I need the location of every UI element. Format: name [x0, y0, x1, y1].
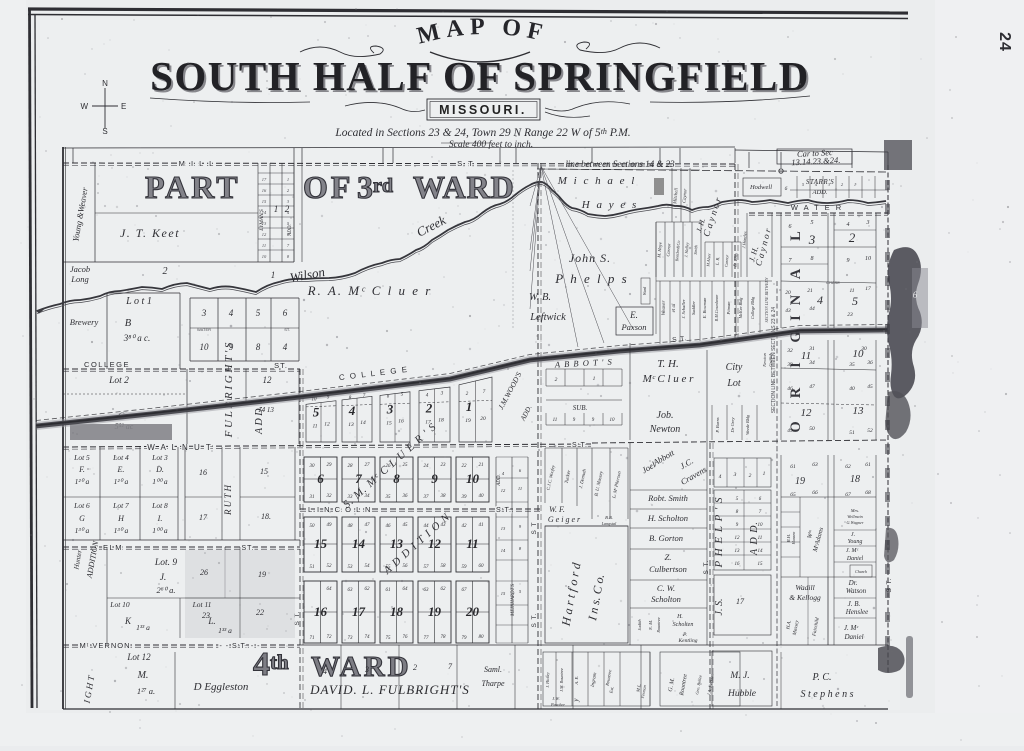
- svg-text:Paxson: Paxson: [620, 322, 646, 332]
- svg-text:28: 28: [348, 464, 354, 469]
- svg-text:14: 14: [352, 536, 366, 551]
- svg-text:13: 13: [735, 549, 741, 554]
- svg-text:Robt. Smith: Robt. Smith: [647, 493, 688, 503]
- svg-text:L.: L.: [207, 616, 215, 626]
- svg-text:L. R.: L. R.: [715, 256, 721, 266]
- svg-text:52: 52: [867, 428, 873, 434]
- svg-text:48: 48: [348, 524, 354, 529]
- svg-text:S T.: S T.: [531, 612, 538, 627]
- svg-text:64: 64: [327, 587, 333, 592]
- svg-text:20: 20: [465, 604, 480, 619]
- svg-text:1⁰⁰ a: 1⁰⁰ a: [152, 477, 168, 486]
- svg-text:& Kellogg: & Kellogg: [789, 593, 821, 602]
- svg-text:50: 50: [310, 524, 316, 529]
- svg-text:John S.: John S.: [569, 251, 611, 265]
- svg-text:45: 45: [867, 383, 873, 390]
- svg-text:H. Scholton: H. Scholton: [647, 513, 688, 523]
- svg-text:Long: Long: [70, 274, 88, 284]
- svg-text:33: 33: [786, 362, 793, 368]
- svg-text:6: 6: [913, 290, 918, 300]
- svg-text:1³³ a: 1³³ a: [136, 623, 150, 632]
- svg-text:49: 49: [327, 523, 333, 528]
- svg-text:17: 17: [736, 597, 745, 606]
- svg-text:N: N: [788, 294, 804, 305]
- svg-text:W. B.: W. B.: [529, 292, 551, 303]
- svg-text:47: 47: [365, 523, 371, 528]
- svg-text:53: 53: [348, 565, 354, 570]
- svg-text:J.: J.: [160, 573, 167, 583]
- svg-text:Kentling: Kentling: [678, 638, 698, 644]
- svg-text:4: 4: [283, 342, 288, 352]
- svg-text:3: 3: [866, 220, 870, 226]
- svg-text:3: 3: [201, 308, 207, 318]
- svg-text:Mᵗ VERNON: Mᵗ VERNON: [79, 641, 130, 650]
- svg-text:1³⁰ a: 1³⁰ a: [114, 526, 129, 535]
- svg-text:4: 4: [348, 403, 356, 418]
- svg-text:ST.: ST.: [284, 327, 290, 332]
- svg-text:40: 40: [479, 494, 485, 499]
- svg-text:G: G: [79, 514, 85, 523]
- svg-text:17: 17: [262, 177, 267, 182]
- svg-text:Lot 12: Lot 12: [126, 652, 151, 662]
- svg-text:A: A: [788, 268, 804, 279]
- svg-text:11: 11: [262, 243, 266, 248]
- svg-text:et al: et al: [672, 303, 677, 312]
- svg-text:39: 39: [462, 495, 468, 500]
- svg-text:Lot. 9: Lot. 9: [154, 558, 177, 568]
- svg-text:Lot 10: Lot 10: [109, 600, 130, 609]
- svg-text:16: 16: [199, 468, 207, 477]
- svg-text:79: 79: [462, 636, 468, 641]
- svg-text:Henslee: Henslee: [845, 608, 869, 616]
- svg-text:13: 13: [348, 422, 354, 428]
- svg-text:Hubble: Hubble: [727, 689, 756, 699]
- svg-text:Rountree: Rountree: [656, 617, 661, 633]
- svg-text:F.: F.: [78, 465, 85, 474]
- svg-text:18.: 18.: [261, 512, 271, 521]
- svg-text:Job.: Job.: [657, 410, 674, 421]
- svg-text:Scale 400 feet to inch.: Scale 400 feet to inch.: [449, 139, 533, 150]
- svg-text:58: 58: [441, 564, 447, 569]
- svg-text:L I N C O L N: L I N C O L N: [308, 505, 372, 514]
- svg-text:10: 10: [865, 256, 871, 262]
- svg-text:63: 63: [812, 462, 818, 468]
- svg-text:10: 10: [262, 254, 267, 259]
- svg-text:L o t 1: L o t 1: [125, 296, 152, 307]
- svg-text:36: 36: [403, 494, 409, 499]
- svg-text:19: 19: [465, 418, 471, 424]
- svg-text:50: 50: [809, 426, 815, 432]
- svg-text:46: 46: [386, 524, 392, 529]
- svg-text:1³³ a: 1³³ a: [218, 626, 232, 635]
- svg-text:61: 61: [386, 588, 391, 593]
- svg-text:17: 17: [425, 419, 431, 425]
- svg-text:E: E: [121, 102, 126, 111]
- svg-text:3: 3: [386, 402, 394, 417]
- svg-text:G e i g e r: G e i g e r: [548, 515, 581, 524]
- svg-text:WARD: WARD: [413, 169, 515, 205]
- svg-text:66: 66: [812, 490, 818, 496]
- svg-text:Saml.: Saml.: [484, 665, 502, 674]
- svg-text:Weede Bldg: Weede Bldg: [745, 415, 750, 435]
- svg-text:Smith: Smith: [693, 245, 699, 255]
- svg-text:42: 42: [462, 524, 468, 529]
- svg-text:J. B.: J. B.: [848, 600, 861, 608]
- svg-text:14: 14: [360, 419, 366, 426]
- svg-text:32: 32: [786, 348, 793, 354]
- svg-text:4: 4: [323, 667, 327, 676]
- svg-text:11: 11: [312, 423, 317, 429]
- svg-text:67: 67: [462, 588, 468, 593]
- svg-text:SECTION LINE BETWEEN: SECTION LINE BETWEEN: [764, 277, 769, 322]
- svg-text:14: 14: [501, 548, 506, 553]
- svg-text:9: 9: [431, 471, 438, 486]
- svg-text:Griffith: Griffith: [768, 353, 773, 367]
- svg-text:12: 12: [501, 488, 506, 493]
- svg-text:18: 18: [850, 474, 860, 485]
- svg-text:37: 37: [424, 495, 430, 500]
- svg-text:45: 45: [403, 523, 409, 528]
- svg-text:47: 47: [809, 383, 815, 390]
- svg-text:Lot 2: Lot 2: [108, 376, 129, 386]
- svg-text:T. H.: T. H.: [657, 358, 679, 370]
- svg-text:OF: OF: [303, 169, 353, 205]
- svg-text:1²⁷ a.: 1²⁷ a.: [137, 686, 155, 696]
- svg-text:B.B.: B.B.: [605, 515, 613, 520]
- svg-text:11: 11: [518, 486, 522, 491]
- svg-text:21: 21: [479, 463, 484, 468]
- svg-text:Watson: Watson: [846, 587, 867, 595]
- svg-text:44: 44: [809, 305, 815, 312]
- svg-text:SOUTH HALF OF SPRINGFIELD: SOUTH HALF OF SPRINGFIELD: [150, 53, 810, 99]
- svg-text:24: 24: [996, 32, 1013, 52]
- svg-text:1²⁰ a: 1²⁰ a: [75, 477, 90, 486]
- svg-text:Newton: Newton: [649, 424, 681, 435]
- svg-text:62: 62: [441, 587, 447, 592]
- svg-text:Z.: Z.: [665, 552, 672, 562]
- svg-text:1: 1: [274, 204, 279, 214]
- svg-text:A D D.: A D D.: [254, 406, 265, 435]
- svg-text:22: 22: [256, 608, 264, 617]
- svg-text:1³⁰ a: 1³⁰ a: [75, 526, 90, 535]
- svg-text:12: 12: [263, 375, 273, 385]
- svg-text:Church: Church: [855, 569, 867, 574]
- svg-text:CHASE: CHASE: [826, 280, 840, 285]
- svg-text:Brewery: Brewery: [70, 317, 99, 327]
- svg-text:57: 57: [424, 565, 430, 570]
- svg-text:8: 8: [256, 342, 261, 352]
- svg-text:9: 9: [847, 258, 850, 264]
- svg-text:78: 78: [441, 635, 447, 640]
- svg-text:L: L: [788, 231, 804, 241]
- svg-text:49: 49: [787, 427, 793, 434]
- svg-text:75: 75: [386, 636, 392, 641]
- svg-text:76: 76: [403, 635, 409, 640]
- svg-text:15: 15: [386, 421, 392, 427]
- svg-text:College Bldg: College Bldg: [750, 297, 755, 319]
- svg-text:4: 4: [719, 473, 722, 480]
- svg-text:63: 63: [348, 588, 354, 593]
- svg-text:McKee Bldg: McKee Bldg: [738, 298, 743, 320]
- svg-text:Jacob: Jacob: [70, 264, 90, 274]
- svg-text:S T: S T: [531, 522, 538, 535]
- svg-text:Lot 5: Lot 5: [73, 453, 90, 462]
- svg-text:52: 52: [327, 564, 333, 569]
- svg-text:31: 31: [310, 495, 315, 500]
- svg-text:4: 4: [229, 308, 234, 318]
- svg-text:M I L L: M I L L: [179, 159, 216, 168]
- svg-text:Mᶜ C l u e r: Mᶜ C l u e r: [642, 373, 695, 385]
- svg-text:Young: Young: [848, 539, 863, 545]
- svg-text:61: 61: [790, 464, 796, 470]
- svg-text:Culbertson: Culbertson: [649, 564, 687, 574]
- svg-text:61: 61: [865, 462, 871, 468]
- svg-text:ADD.: ADD.: [497, 474, 502, 487]
- svg-text:H a y e s: H a y e s: [581, 199, 639, 211]
- svg-text:S t e p h e n s: S t e p h e n s: [800, 689, 853, 700]
- svg-text:4: 4: [847, 221, 850, 228]
- svg-text:46: 46: [787, 385, 793, 392]
- svg-text:W: W: [80, 102, 88, 111]
- svg-text:2: 2: [413, 663, 417, 672]
- svg-text:20: 20: [480, 416, 486, 422]
- svg-text:24: 24: [424, 464, 430, 469]
- svg-text:16: 16: [314, 604, 328, 619]
- svg-text:68: 68: [865, 490, 871, 496]
- svg-text:R U T H: R U T H: [223, 484, 233, 516]
- svg-text:30: 30: [310, 464, 316, 469]
- svg-text:E. Bowman: E. Bowman: [702, 297, 707, 319]
- svg-text:3⁸⁰ a c.: 3⁸⁰ a c.: [123, 333, 150, 343]
- svg-text:60: 60: [479, 564, 485, 569]
- svg-text:DAVID. L. FULBRIGHT'S: DAVID. L. FULBRIGHT'S: [309, 682, 470, 697]
- svg-text:1⁰⁰ a: 1⁰⁰ a: [152, 526, 168, 535]
- svg-text:Lot 8: Lot 8: [151, 501, 168, 510]
- svg-text:Hodwell: Hodwell: [749, 184, 772, 191]
- svg-text:Lot 7: Lot 7: [112, 501, 129, 510]
- svg-text:13: 13: [853, 405, 865, 417]
- svg-text:Wadill: Wadill: [795, 583, 814, 592]
- svg-text:23: 23: [847, 312, 853, 318]
- svg-text:4: 4: [817, 293, 823, 307]
- svg-text:5: 5: [256, 308, 261, 318]
- svg-text:1²⁰ a: 1²⁰ a: [114, 477, 129, 486]
- svg-text:line between Sections 14 & 23: line between Sections 14 & 23: [565, 159, 675, 169]
- svg-text:P. Burns: P. Burns: [715, 417, 720, 433]
- svg-text:22: 22: [462, 464, 468, 469]
- svg-text:54: 54: [365, 564, 371, 569]
- svg-text:N: N: [102, 79, 108, 88]
- svg-text:Daniel: Daniel: [843, 633, 863, 641]
- svg-text:Wellmein: Wellmein: [847, 514, 862, 519]
- svg-text:62: 62: [845, 464, 851, 470]
- svg-text:G.Wagner: G.Wagner: [847, 520, 864, 525]
- svg-text:80: 80: [479, 635, 485, 640]
- svg-text:A D D.: A D D.: [749, 521, 760, 556]
- svg-text:11: 11: [801, 350, 811, 362]
- svg-text:15: 15: [758, 562, 764, 567]
- svg-text:Newton: Newton: [762, 352, 767, 368]
- svg-text:H.: H.: [676, 614, 683, 620]
- svg-text:M. J.: M. J.: [729, 671, 749, 681]
- svg-text:15: 15: [314, 536, 328, 551]
- svg-text:ST.: ST.: [274, 361, 288, 370]
- svg-text:72: 72: [327, 635, 333, 640]
- svg-text:N. M.: N. M.: [648, 620, 653, 631]
- svg-text:10: 10: [610, 418, 616, 423]
- svg-text:C. W.: C. W.: [657, 583, 675, 593]
- svg-text:B: B: [125, 318, 132, 329]
- svg-text:51: 51: [849, 430, 855, 436]
- svg-text:Lot 3: Lot 3: [151, 453, 168, 462]
- svg-text:15: 15: [260, 467, 268, 476]
- svg-text:23: 23: [441, 463, 447, 468]
- svg-text:2: 2: [163, 266, 168, 277]
- svg-text:R. A. Mᶜ C l u e r: R. A. Mᶜ C l u e r: [307, 283, 433, 298]
- svg-text:Saddler: Saddler: [691, 301, 696, 315]
- svg-text:59: 59: [462, 565, 468, 570]
- svg-text:Scholton: Scholton: [651, 594, 681, 604]
- svg-text:25: 25: [403, 463, 409, 468]
- svg-text:K: K: [124, 616, 132, 626]
- svg-text:6: 6: [317, 471, 324, 486]
- svg-text:Ward: Ward: [642, 286, 647, 295]
- svg-text:10: 10: [200, 342, 210, 352]
- svg-text:35: 35: [386, 495, 392, 500]
- svg-text:R.M.Cownlenee: R.M.Cownlenee: [714, 294, 719, 322]
- svg-text:71: 71: [310, 636, 315, 641]
- svg-text:3: 3: [808, 232, 816, 247]
- svg-text:19: 19: [795, 476, 805, 487]
- svg-text:City: City: [726, 362, 743, 373]
- svg-text:P H E L P ' S: P H E L P ' S: [713, 497, 725, 569]
- svg-text:63: 63: [424, 588, 430, 593]
- svg-text:5: 5: [852, 294, 858, 308]
- svg-text:S T.: S T.: [703, 559, 710, 574]
- svg-text:51: 51: [310, 565, 315, 570]
- svg-text:WATER: WATER: [197, 327, 211, 332]
- svg-text:15: 15: [262, 199, 267, 204]
- svg-text:J. T. Keet: J. T. Keet: [120, 226, 180, 240]
- svg-text:B. Gorton: B. Gorton: [649, 533, 683, 543]
- svg-text:6: 6: [785, 186, 788, 192]
- svg-text:43: 43: [785, 307, 791, 314]
- svg-text:17: 17: [352, 604, 366, 619]
- svg-text:12: 12: [801, 407, 813, 419]
- svg-text:10: 10: [312, 397, 318, 402]
- svg-text:Lot 4: Lot 4: [112, 453, 129, 462]
- svg-text:2: 2: [555, 377, 558, 383]
- svg-text:F U L B R I G H T ' S: F U L B R I G H T ' S: [223, 342, 235, 438]
- svg-text:1: 1: [593, 376, 596, 382]
- svg-text:5: 5: [313, 404, 320, 419]
- svg-text:62: 62: [365, 587, 371, 592]
- svg-text:67: 67: [845, 492, 851, 498]
- svg-text:W A T E R: W A T E R: [791, 203, 843, 212]
- svg-text:6: 6: [789, 224, 792, 230]
- svg-text:35: 35: [848, 362, 855, 368]
- svg-text:Leftwick: Leftwick: [529, 312, 566, 323]
- svg-text:65: 65: [790, 492, 796, 498]
- svg-text:Weaver: Weaver: [662, 301, 667, 316]
- svg-text:5: 5: [811, 220, 814, 226]
- svg-text:32: 32: [327, 494, 333, 499]
- svg-text:1: 1: [466, 399, 473, 414]
- svg-text:26: 26: [200, 568, 208, 577]
- svg-text:74: 74: [365, 635, 371, 640]
- svg-text:W. F.: W. F.: [549, 505, 565, 514]
- svg-text:56: 56: [403, 564, 409, 569]
- svg-text:Dr Grey: Dr Grey: [730, 418, 735, 434]
- svg-text:29: 29: [327, 463, 333, 468]
- svg-text:36: 36: [866, 360, 873, 366]
- svg-text:G: G: [788, 331, 804, 342]
- svg-text:J.W.: J.W.: [552, 696, 560, 701]
- svg-text:W A L N U T: W A L N U T: [147, 443, 213, 452]
- svg-text:19: 19: [428, 604, 442, 619]
- svg-text:Dr.: Dr.: [848, 579, 858, 587]
- svg-text:J. Mᶜ: J. Mᶜ: [846, 548, 859, 554]
- svg-text:Mrs.: Mrs.: [850, 508, 859, 513]
- svg-text:41: 41: [479, 523, 484, 528]
- svg-text:Daniel: Daniel: [846, 556, 864, 562]
- svg-text:J.M. Rountree: J.M. Rountree: [559, 668, 564, 692]
- svg-text:15: 15: [501, 591, 506, 596]
- svg-text:73: 73: [348, 636, 354, 641]
- svg-text:E.: E.: [629, 310, 638, 320]
- svg-text:19: 19: [258, 570, 266, 579]
- svg-text:8: 8: [811, 256, 814, 262]
- svg-text:Peacher: Peacher: [550, 702, 565, 707]
- svg-text:MEINHARDT'S: MEINHARDT'S: [511, 584, 516, 617]
- svg-text:2⁶⁰ a.: 2⁶⁰ a.: [156, 585, 175, 595]
- svg-text:16: 16: [735, 562, 741, 567]
- svg-text:10: 10: [853, 348, 865, 360]
- svg-text:SUB.: SUB.: [573, 404, 588, 412]
- svg-text:Lot 11: Lot 11: [192, 600, 212, 609]
- svg-text:D Eggleston: D Eggleston: [193, 681, 249, 693]
- svg-text:J. S.: J. S.: [714, 599, 725, 616]
- svg-text:ADD.: ADD.: [288, 224, 293, 237]
- svg-text:12: 12: [735, 536, 741, 541]
- svg-text:8: 8: [393, 471, 400, 486]
- svg-text:I: I: [788, 315, 804, 321]
- svg-text:E.: E.: [117, 465, 125, 474]
- svg-text:1: 1: [763, 471, 766, 477]
- svg-text:16: 16: [262, 188, 267, 193]
- svg-text:11: 11: [466, 536, 478, 551]
- svg-text:Pitman: Pitman: [726, 301, 731, 316]
- svg-text:12: 12: [262, 232, 267, 237]
- svg-text:Lot 6: Lot 6: [73, 501, 90, 510]
- svg-text:J.: J.: [851, 532, 855, 538]
- svg-text:2: 2: [749, 473, 752, 479]
- svg-text:21: 21: [807, 288, 813, 294]
- svg-text:MISSOURI.: MISSOURI.: [439, 103, 527, 117]
- svg-text:S T.: S T.: [294, 610, 301, 625]
- svg-text:16: 16: [398, 419, 404, 425]
- svg-text:40: 40: [849, 385, 855, 392]
- svg-text:18: 18: [438, 417, 444, 423]
- svg-text:3: 3: [733, 472, 737, 478]
- svg-text:S: S: [102, 127, 107, 136]
- svg-text:6: 6: [283, 308, 288, 318]
- svg-text:Located in Sections 23 & 24, T: Located in Sections 23 & 24, Town 29 N R…: [334, 127, 630, 139]
- svg-text:P h e l p s: P h e l p s: [554, 271, 628, 286]
- svg-text:I.: I.: [157, 514, 163, 523]
- svg-text:Hansen: Hansen: [791, 532, 796, 546]
- svg-text:Langstal: Langstal: [601, 521, 617, 526]
